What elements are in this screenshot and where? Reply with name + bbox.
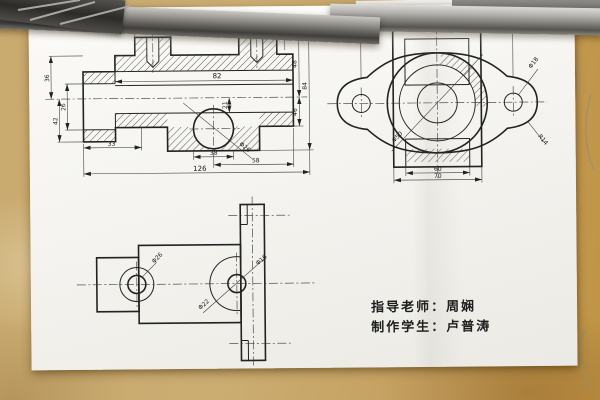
dim-side-base-outer: 70 — [434, 173, 442, 180]
credits-student-line: 制作学生：卢普涛 — [371, 316, 561, 338]
credits-teacher-line: 指导老师：周娴 — [371, 296, 561, 318]
dim-front-right-lower: 46 — [292, 108, 299, 116]
dim-front-left-lower: 42 — [52, 117, 59, 125]
dim-front-bore-length: 82 — [213, 72, 222, 80]
dim-front-bottom-right: 58 — [252, 157, 260, 164]
dim-top-right-hole: Φ16 — [255, 253, 269, 267]
dim-front-bottom-step: 33 — [108, 141, 116, 148]
dim-front-left-upper: 36 — [44, 74, 51, 82]
front-view: 80 18 30 82 36 42 26 21 48 46 84 33 38 5… — [44, 16, 314, 177]
paper-sheet: 80 18 30 82 36 42 26 21 48 46 84 33 38 5… — [28, 4, 577, 371]
top-centerlines — [76, 196, 315, 368]
clip-wires — [0, 0, 240, 40]
dim-top-left-bore: Φ26 — [151, 251, 165, 265]
top-view: Φ26 Φ22 Φ16 — [76, 196, 315, 368]
dim-front-left-bore: 26 — [60, 103, 67, 111]
dim-front-bottom-boss: 38 — [210, 150, 218, 157]
dim-front-right-overall: 84 — [302, 82, 309, 90]
dim-top-main-bore: Φ22 — [197, 298, 211, 312]
dim-side-base-inner: 60 — [434, 166, 442, 173]
credits-block: 指导老师：周娴 制作学生：卢普涛 — [371, 296, 561, 338]
dim-front-center-depth: 21 — [222, 101, 229, 109]
dim-front-overall-width: 126 — [193, 165, 207, 173]
dim-side-bolt-hole: Φ18 — [527, 56, 540, 70]
dim-front-right-upper: 48 — [291, 60, 298, 68]
dim-side-lobe-radius: R14 — [536, 133, 549, 147]
